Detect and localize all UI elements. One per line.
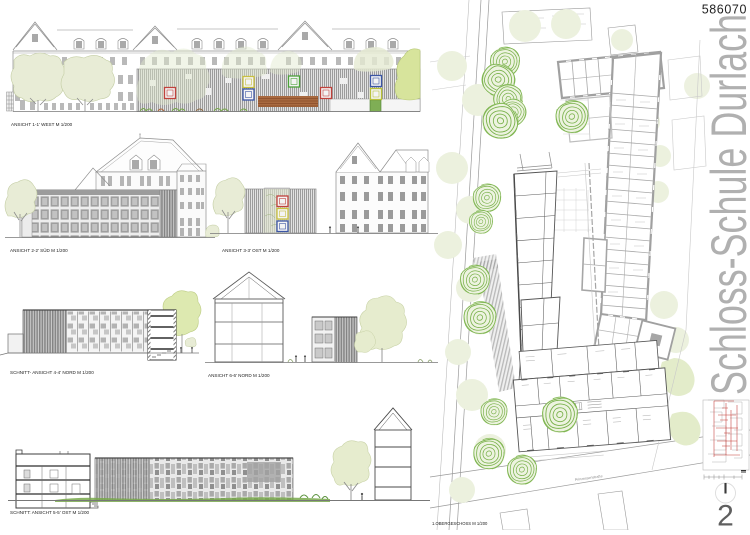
svg-text:ANSICHT 3-3' OST M 1/200: ANSICHT 3-3' OST M 1/200 xyxy=(222,248,280,253)
svg-text:ANSICHT 6-6' NORD M 1/200: ANSICHT 6-6' NORD M 1/200 xyxy=(208,373,270,378)
svg-text:2: 2 xyxy=(717,500,734,531)
svg-text:Schloss-Schule Durlach: Schloss-Schule Durlach xyxy=(701,14,750,395)
svg-text:SCHNITT- ANSICHT 4-4' NORD M 1: SCHNITT- ANSICHT 4-4' NORD M 1/200 xyxy=(10,370,94,375)
svg-text:ANSICHT 1-1' WEST M 1/200: ANSICHT 1-1' WEST M 1/200 xyxy=(11,122,73,127)
svg-text:1.OBERGESCHOSS M 1/200: 1.OBERGESCHOSS M 1/200 xyxy=(432,521,488,526)
svg-text:ANSICHT 2-2' SÜD M 1/200: ANSICHT 2-2' SÜD M 1/200 xyxy=(10,247,68,253)
svg-text:SCHNITT: ANSICHT 5-5' OST M 1/: SCHNITT: ANSICHT 5-5' OST M 1/200 xyxy=(10,510,90,515)
